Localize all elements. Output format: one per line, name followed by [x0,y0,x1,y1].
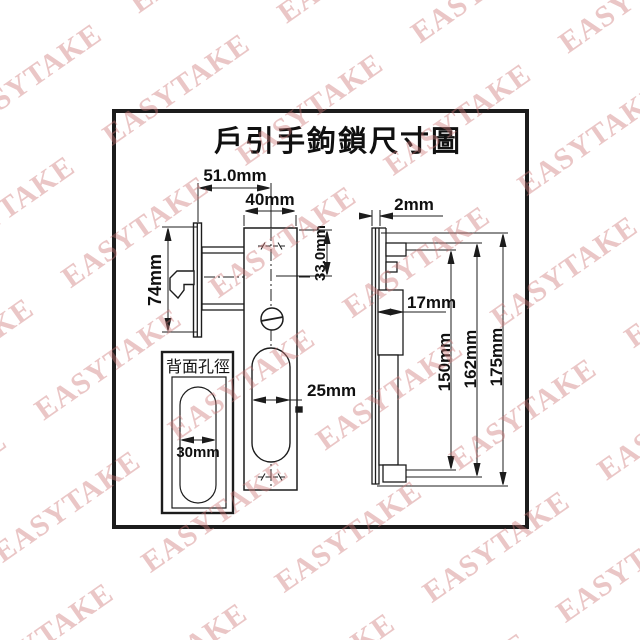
diagram-page: 戶引手鉤鎖尺寸圖 74mm 51.0mm [0,0,640,640]
dim-hook-plate-height: 74mm [145,254,165,306]
dim-back-hole-width: 30mm [176,444,219,461]
back-hole-title: 背面孔徑 [166,358,230,376]
dim-cutout-width: 25mm [307,381,356,400]
dim-top-to-center: 33.0mm [312,225,329,281]
page-title: 戶引手鉤鎖尺寸圖 [214,124,462,158]
dim-plate-width: 40mm [245,190,294,209]
front-view-drawing [244,228,302,490]
dim-case-depth: 17mm [407,293,456,312]
hook-housing-tab [386,243,406,256]
back-hole-inset [162,352,233,513]
dim-faceplate-thickness: 2mm [394,195,434,214]
edge-view-drawing [372,228,406,484]
dim-plate-width-lines [244,211,296,226]
dim-backset: 51.0mm [203,166,266,185]
lock-case-profile [378,290,403,355]
dim-mid-span: 162mm [461,330,480,389]
dim-inner-span: 150mm [435,333,454,392]
dimension-diagram: 戶引手鉤鎖尺寸圖 74mm 51.0mm [0,0,640,640]
hook-bolt-profile [170,271,194,298]
handle-cutout [252,348,290,462]
dim-overall-height: 175mm [487,328,506,387]
